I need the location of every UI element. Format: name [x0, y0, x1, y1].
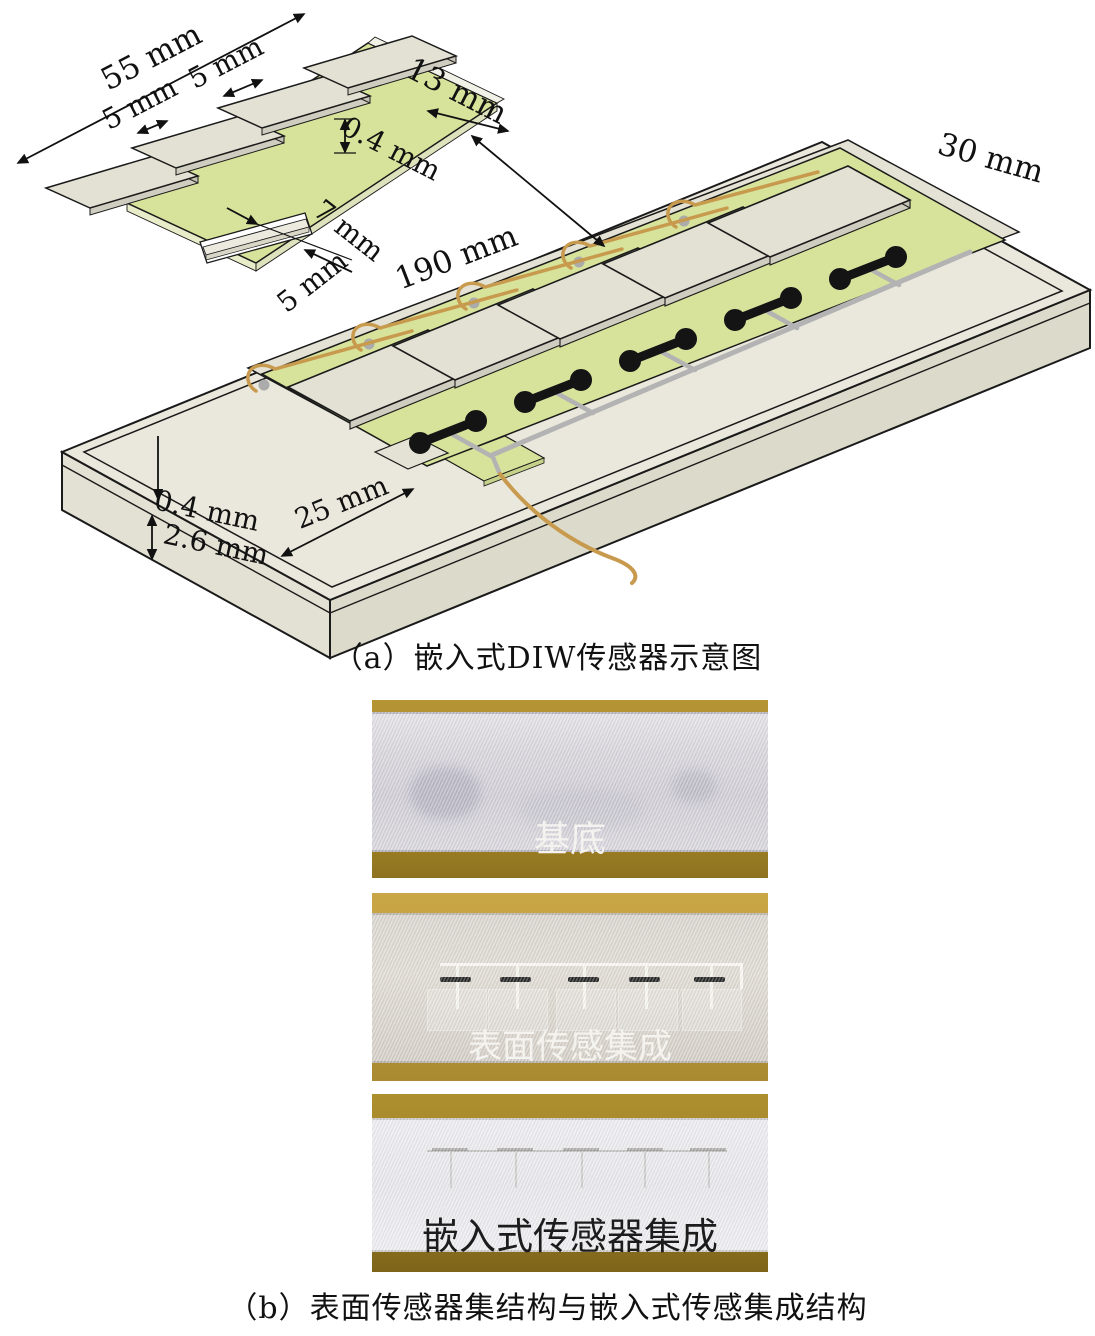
figure-page: 55 mm 5 mm 5 mm 13 mm 0.4 mm 7 mm 5 mm 1…	[0, 0, 1095, 1336]
dim-label-30mm: 30 mm	[934, 126, 1048, 190]
caption-panel-a: （a）嵌入式DIW传感器示意图	[0, 633, 1095, 677]
sensor-electrode	[500, 977, 531, 982]
dim-arrow-5mm-left	[138, 121, 167, 133]
trace-stub	[645, 965, 648, 1009]
embedded-stub	[708, 1152, 710, 1188]
trace-stub	[516, 965, 519, 1009]
photo-surface-sensors: 表面传感集成	[372, 893, 768, 1081]
photo-substrate: 基底	[372, 700, 768, 878]
printed-trace-line	[440, 963, 742, 966]
printed-trace-bend	[740, 963, 743, 989]
caption-panel-b: （b）表面传感器集结构与嵌入式传感集成结构	[0, 1283, 1095, 1327]
dim-label-5mm-tab: 5 mm	[271, 244, 354, 319]
photo-label-substrate: 基底	[534, 810, 606, 862]
embedded-stub	[450, 1152, 452, 1188]
trace-stub	[710, 965, 713, 1009]
photo-label-embedded: 嵌入式传感器集成	[422, 1206, 718, 1260]
sensor-electrode	[568, 977, 599, 982]
embedded-stub	[515, 1152, 517, 1188]
embedded-trace-line	[427, 1150, 727, 1152]
diw-sensor-schematic: 55 mm 5 mm 5 mm 13 mm 0.4 mm 7 mm 5 mm 1…	[0, 0, 1095, 690]
pad-ghost	[682, 989, 742, 1031]
embedded-electrode	[563, 1148, 599, 1151]
photo-label-surface: 表面传感集成	[468, 1019, 672, 1068]
embedded-electrode	[690, 1148, 726, 1151]
embedded-electrode	[627, 1148, 663, 1151]
photo-embedded-sensors: 嵌入式传感器集成	[372, 1094, 768, 1272]
embedded-electrode	[432, 1148, 468, 1151]
sensor-electrode	[629, 977, 660, 982]
sensor-electrode	[694, 977, 725, 982]
trace-stub	[583, 965, 586, 1009]
sensor-electrode	[440, 977, 471, 982]
embedded-stub	[644, 1152, 646, 1188]
embedded-stub	[581, 1152, 583, 1188]
dim-arrow-5mm-gap	[224, 80, 262, 96]
embedded-electrode	[497, 1148, 533, 1151]
trace-stub	[456, 965, 459, 1009]
substrate-shadow	[672, 770, 716, 802]
substrate-shadow	[410, 767, 480, 819]
